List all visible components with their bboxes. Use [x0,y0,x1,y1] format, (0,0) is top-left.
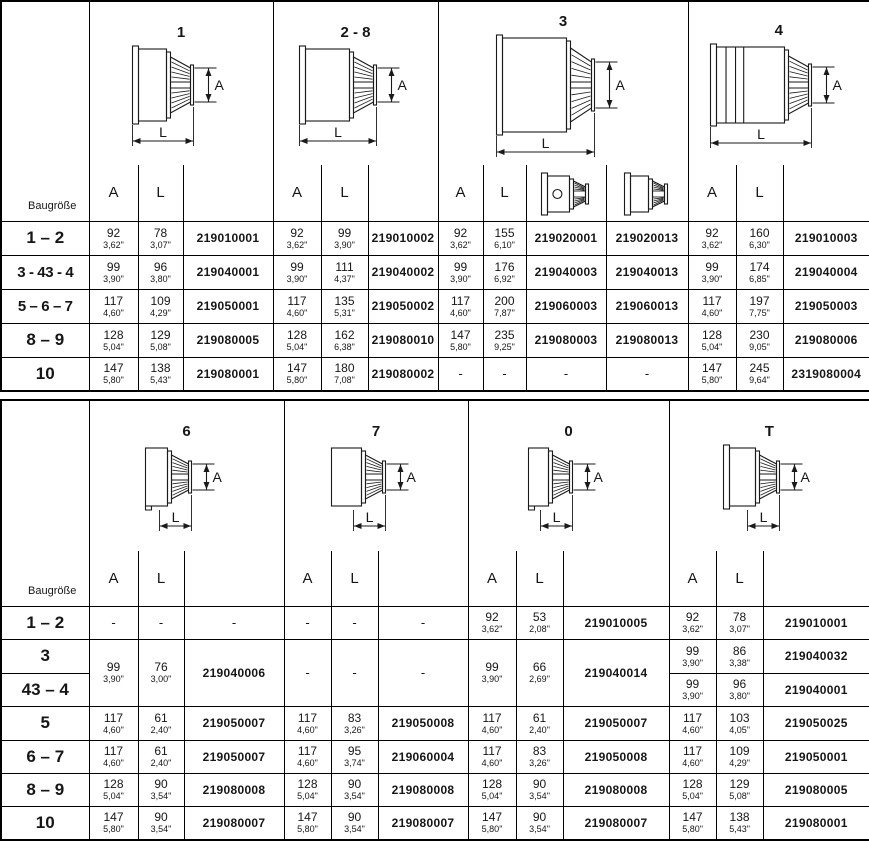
row-label: 10 [1,357,89,391]
dim-l-value-cell: 1094,29" [716,740,763,773]
l-inch-value: 7,75" [737,308,783,318]
a-mm-value: 92 [274,227,321,240]
part-number: - [527,366,606,381]
dim-l-value-cell: 1766,92" [483,255,526,289]
a-inch-value: 5,04" [469,791,516,801]
dim-l-value-cell: 903,54" [516,806,563,840]
dim-l-value-cell: 783,07" [716,606,763,639]
l-inch-value: 9,25" [484,342,526,352]
part-number-cell: 219040013 [606,255,688,289]
a-mm-value: 147 [670,811,716,824]
dim-l-value-cell: 1114,37" [321,255,368,289]
a-mm-value: 99 [90,261,138,274]
part-number: 219040006 [185,666,284,680]
l-inch-value: 9,64" [737,375,783,385]
l-inch-value: 3,07" [717,624,763,634]
row-label: 1 – 2 [1,221,89,255]
part-number: 219020013 [607,231,688,245]
a-mm-value: 99 [670,645,716,658]
dim-l-label: L [365,509,373,525]
col-header-part-number-cell [563,551,669,606]
l-mm-value: 235 [484,329,526,342]
dim-a-value-cell: 1475,80" [284,806,331,840]
col-header-a-cell: A [468,551,516,606]
a-mm-value: 117 [90,745,138,758]
dim-a-value-cell: 923,62" [273,221,321,255]
dim-l-value-cell: 963,80" [138,255,183,289]
l-mm-value: 230 [737,329,783,342]
dim-l-value-cell: 2359,25" [483,323,526,357]
l-inch-value: 4,29" [139,308,183,318]
drill-chuck-drawing-icon: AL [689,39,869,152]
part-number: 219050008 [564,750,669,764]
l-inch-value: 3,38" [717,658,763,668]
part-number: 219080007 [185,816,284,830]
chuck-face-keyhole-icon [527,168,606,218]
dim-a-value-cell: - [438,357,483,391]
section-header-cell: 7AL [284,400,468,551]
dim-l-value-cell: 833,26" [516,740,563,773]
a-inch-value: 5,04" [90,791,138,801]
col-header-a: A [274,184,321,201]
col-header-a-cell: A [669,551,716,606]
a-mm-value: 128 [689,329,736,342]
part-number: 219050008 [379,716,468,730]
col-header-l-cell: L [331,551,378,606]
a-mm-value: 147 [469,811,516,824]
col-header-part-number-cell [378,551,468,606]
part-number-cell: 219010005 [563,606,669,639]
section-header-cell: 3AL [438,1,688,165]
part-number-cell: 219040002 [368,255,438,289]
a-mm-value: - [90,616,138,629]
l-inch-value: 3,54" [517,824,563,834]
a-mm-value: 117 [689,295,736,308]
part-number: 219050025 [764,716,869,730]
a-mm-value: 99 [469,661,516,674]
a-inch-value: 4,60" [670,758,716,768]
a-inch-value: 4,60" [90,725,138,735]
l-inch-value: 2,08" [517,624,563,634]
dim-a-value-cell: 1174,60" [688,289,736,323]
dim-l-value-cell: 1385,43" [716,806,763,840]
part-number-cell: 219080013 [606,323,688,357]
dim-l-label: L [334,124,342,140]
part-number: 219050007 [185,750,284,764]
a-mm-value: 117 [285,745,331,758]
a-inch-value: 3,62" [469,624,516,634]
l-inch-value: 3,54" [139,824,184,834]
l-inch-value: 5,43" [139,375,183,385]
l-mm-value: 61 [517,712,563,725]
drill-chuck-drawing-icon: AL [439,30,688,161]
part-number: 219040004 [784,265,869,279]
baugroesse-label: Baugröße [2,585,89,606]
col-header-a-cell: A [688,165,736,221]
l-mm-value: 129 [717,778,763,791]
part-number: 219010005 [564,616,669,630]
section-title: T [765,417,774,440]
l-mm-value: - [139,616,184,629]
part-number: 219050003 [784,299,869,313]
part-number: 2319080004 [784,367,869,381]
l-mm-value: - [332,666,378,679]
dim-a-value-cell: 1475,80" [89,806,138,840]
dim-a-value-cell: - [284,639,331,706]
l-mm-value: 129 [139,329,183,342]
part-number: 219080008 [379,783,468,797]
dim-l-value-cell: 1977,75" [736,289,783,323]
a-mm-value: 128 [285,778,331,791]
col-header-l: L [139,184,183,201]
a-mm-value: - [285,616,331,629]
part-number-cell: 219080005 [183,323,273,357]
a-inch-value: 3,62" [90,240,138,250]
a-inch-value: 3,62" [439,240,483,250]
part-number: - [185,615,284,630]
part-number-cell: 219050003 [783,289,869,323]
col-header-l-cell: L [736,165,783,221]
a-mm-value: 92 [469,611,516,624]
a-inch-value: 4,60" [469,725,516,735]
l-mm-value: 138 [717,811,763,824]
row-label: 1 – 2 [1,606,89,639]
a-inch-value: 5,80" [670,824,716,834]
col-header-a-cell: A [273,165,321,221]
drill-chuck-drawing-icon: AL [285,440,468,535]
col-header-part-number-cell [184,551,284,606]
row-label: 8 – 9 [1,323,89,357]
col-header-l-cell: L [138,165,183,221]
section-header-cell: 2 - 8AL [273,1,438,165]
l-inch-value: 3,26" [332,725,378,735]
a-mm-value: 147 [274,362,321,375]
dim-a-value-cell: 993,90" [468,639,516,706]
part-number: 219050002 [369,299,438,313]
l-mm-value: 103 [717,712,763,725]
l-inch-value: 2,40" [517,725,563,735]
l-mm-value: 90 [139,811,184,824]
col-header-l: L [332,570,378,587]
dim-l-value-cell: 2007,87" [483,289,526,323]
l-mm-value: 111 [322,261,368,274]
l-mm-value: 66 [517,661,563,674]
col-header-a: A [670,570,716,587]
dim-a-value-cell: 1475,80" [273,357,321,391]
dim-a-value-cell: 993,90" [438,255,483,289]
part-number: 219080013 [607,333,688,347]
a-inch-value: 3,90" [90,274,138,284]
dim-l-value-cell: 532,08" [516,606,563,639]
col-header-a: A [90,570,138,587]
dim-l-value-cell: 963,80" [716,673,763,706]
dim-l-value-cell: - [138,606,184,639]
dim-l-label: L [172,509,180,525]
l-inch-value: 2,69" [517,674,563,684]
dim-a-value-cell: 993,90" [89,639,138,706]
dim-a-value-cell: 1174,60" [669,740,716,773]
dim-l-value-cell: 903,54" [138,806,184,840]
part-number-cell: 219050025 [763,706,869,740]
dim-a-label: A [594,469,604,485]
l-mm-value: 109 [139,295,183,308]
dim-a-value-cell: 1174,60" [89,706,138,740]
a-inch-value: 5,04" [274,342,321,352]
row-label: 10 [1,806,89,840]
part-number: 219080003 [527,333,606,347]
col-header-a: A [689,184,736,201]
part-number: - [607,366,688,381]
a-mm-value: 147 [285,811,331,824]
a-mm-value: 147 [439,329,483,342]
part-number: - [379,665,468,680]
part-number-cell: - [184,606,284,639]
part-number: 219020001 [527,231,606,245]
part-number-cell: 219040001 [763,673,869,706]
a-mm-value: 99 [670,678,716,691]
a-mm-value: 117 [274,295,321,308]
drill-chuck-drawing-icon: AL [90,440,284,535]
l-inch-value: 3,07" [139,240,183,250]
dim-a-value-cell: 1285,04" [669,773,716,806]
a-inch-value: 3,90" [670,691,716,701]
part-number: 219080007 [379,816,468,830]
l-inch-value: 3,90" [322,240,368,250]
a-inch-value: 4,60" [439,308,483,318]
part-number-cell: 219080008 [563,773,669,806]
part-number-cell: 219040003 [526,255,606,289]
l-inch-value: 3,80" [717,691,763,701]
l-mm-value: 162 [322,329,368,342]
l-mm-value: 197 [737,295,783,308]
part-number: 219040032 [764,649,869,663]
section-title: 0 [564,417,572,440]
l-mm-value: - [332,616,378,629]
dim-a-value-cell: 923,62" [669,606,716,639]
part-number: 219040013 [607,265,688,279]
dim-a-value-cell: 1174,60" [89,740,138,773]
a-mm-value: 128 [90,329,138,342]
l-inch-value: 5,43" [717,824,763,834]
col-header-l-cell: L [321,165,368,221]
size-table-bottom: Baugröße6AL7AL0ALTALALALALAL1 – 2------9… [0,399,869,841]
a-inch-value: 5,80" [439,342,483,352]
l-inch-value: 3,54" [332,791,378,801]
a-inch-value: 3,90" [469,674,516,684]
row-label: 8 – 9 [1,773,89,806]
part-number: 219080008 [185,783,284,797]
dim-a-value-cell: 1285,04" [284,773,331,806]
dim-l-value-cell: - [331,639,378,706]
col-header-l: L [139,570,184,587]
l-mm-value: 200 [484,295,526,308]
part-number: 219040003 [527,265,606,279]
a-inch-value: 4,60" [285,725,331,735]
section-title: 7 [372,417,380,440]
l-inch-value: 3,80" [139,274,183,284]
part-number-cell: 219080010 [368,323,438,357]
part-number: 219060003 [527,299,606,313]
part-number-cell: - [378,639,468,706]
row-label: 43 – 4 [1,673,89,706]
part-number-cell: - [378,606,468,639]
dim-l-value-cell: 903,54" [138,773,184,806]
part-number: 219080005 [764,783,869,797]
part-number-cell: 219020001 [526,221,606,255]
size-table-top: Baugröße1AL2 - 8AL3AL4ALALALALAL1 – 2923… [0,0,869,392]
a-mm-value: 117 [469,712,516,725]
dim-a-value-cell: 993,90" [669,673,716,706]
part-number: 219050007 [185,716,284,730]
a-inch-value: 5,04" [670,791,716,801]
part-number-cell: 219080005 [763,773,869,806]
l-inch-value: 5,08" [139,342,183,352]
dim-l-label: L [159,124,167,140]
dim-a-value-cell: 993,90" [688,255,736,289]
dim-a-value-cell: 1475,80" [468,806,516,840]
dim-l-value-cell: - [483,357,526,391]
a-inch-value: 3,62" [274,240,321,250]
part-number-cell: 219040032 [763,639,869,673]
a-mm-value: 99 [274,261,321,274]
dim-l-label: L [760,509,768,525]
l-mm-value: 155 [484,227,526,240]
a-inch-value: 4,60" [90,758,138,768]
l-mm-value: 138 [139,362,183,375]
col-header-l: L [717,570,763,587]
row-label: 5 – 6 – 7 [1,289,89,323]
a-mm-value: 117 [90,712,138,725]
part-number-cell: 219080007 [184,806,284,840]
section-title: 1 [177,18,185,41]
a-mm-value: 147 [689,362,736,375]
dim-a-label: A [397,77,407,93]
l-inch-value: 5,31" [322,308,368,318]
part-number: - [379,615,468,630]
dim-l-value-cell: 1094,29" [138,289,183,323]
part-number-cell: 219040001 [183,255,273,289]
l-mm-value: 96 [139,261,183,274]
l-inch-value: 4,29" [717,758,763,768]
col-header-a-cell: A [438,165,483,221]
part-number-cell: 219080002 [368,357,438,391]
dim-a-value-cell: 1174,60" [273,289,321,323]
part-number-cell: 219060004 [378,740,468,773]
l-mm-value: 90 [517,811,563,824]
col-header-a: A [469,570,516,587]
part-number-cell: 219040014 [563,639,669,706]
dim-l-label: L [553,509,561,525]
a-mm-value: 128 [90,778,138,791]
col-header-part-number-cell [183,165,273,221]
part-number-cell: 219020013 [606,221,688,255]
dim-a-value-cell: 1475,80" [688,357,736,391]
section-title: 6 [182,417,190,440]
a-mm-value: - [439,367,483,380]
part-number-cell: 219050008 [563,740,669,773]
l-mm-value: 78 [139,227,183,240]
dim-l-value-cell: 612,40" [516,706,563,740]
dim-l-label: L [757,126,765,142]
a-inch-value: 4,60" [285,758,331,768]
part-number-cell: 2319080004 [783,357,869,391]
a-mm-value: 92 [439,227,483,240]
row-label: 3 - 43 - 4 [1,255,89,289]
dim-l-value-cell: 1385,43" [138,357,183,391]
part-number-cell: 219010002 [368,221,438,255]
dim-a-value-cell: 923,62" [438,221,483,255]
col-header-l-cell: L [516,551,563,606]
l-mm-value: 78 [717,611,763,624]
part-number: 219040002 [369,265,438,279]
part-number: 219050007 [564,716,669,730]
drill-chuck-drawing-icon: AL [90,41,273,150]
l-inch-value: 6,92" [484,274,526,284]
part-number-cell: 219050008 [378,706,468,740]
dim-l-value-cell: 2309,05" [736,323,783,357]
l-mm-value: - [484,367,526,380]
l-mm-value: 83 [332,712,378,725]
part-number-cell: 219080007 [378,806,468,840]
dim-a-label: A [801,469,811,485]
dim-a-label: A [215,77,225,93]
a-mm-value: 99 [439,261,483,274]
part-number: 219010003 [784,231,869,245]
dim-a-value-cell: - [89,606,138,639]
col-header-a: A [439,184,483,201]
part-number-cell: 219050001 [183,289,273,323]
dim-l-value-cell: 2459,64" [736,357,783,391]
part-number: 219080007 [564,816,669,830]
dim-l-value-cell: 863,38" [716,639,763,673]
part-number: 219080001 [184,367,273,381]
l-mm-value: 160 [737,227,783,240]
section-header-cell: TAL [669,400,869,551]
dim-a-label: A [406,469,416,485]
dim-a-value-cell: 993,90" [669,639,716,673]
part-number: 219010002 [369,231,438,245]
col-header-l: L [517,570,563,587]
l-inch-value: 3,54" [517,791,563,801]
l-inch-value: 3,54" [139,791,184,801]
section-header-cell: 4AL [688,1,869,165]
part-number-cell: 219080001 [183,357,273,391]
a-inch-value: 5,80" [90,824,138,834]
part-number: 219080006 [784,333,869,347]
part-number-cell: 219080001 [763,806,869,840]
section-header-cell: 1AL [89,1,273,165]
dim-l-value-cell: 1034,05" [716,706,763,740]
dim-a-value-cell: 923,62" [688,221,736,255]
part-number: 219060004 [379,750,468,764]
part-number-cell: 219080006 [783,323,869,357]
dim-a-label: A [615,77,625,93]
a-mm-value: 117 [469,745,516,758]
l-inch-value: 9,05" [737,342,783,352]
dim-a-value-cell: 1174,60" [438,289,483,323]
dim-l-value-cell: - [331,606,378,639]
l-mm-value: 83 [517,745,563,758]
l-inch-value: 3,00" [139,674,184,684]
dim-a-value-cell: 1475,80" [438,323,483,357]
l-inch-value: 2,40" [139,725,184,735]
l-inch-value: 6,38" [322,342,368,352]
l-mm-value: 96 [717,678,763,691]
catalog-page: Baugröße1AL2 - 8AL3AL4ALALALALAL1 – 2923… [0,0,869,848]
l-inch-value: 7,08" [322,375,368,385]
a-mm-value: 147 [90,362,138,375]
a-inch-value: 5,80" [689,375,736,385]
